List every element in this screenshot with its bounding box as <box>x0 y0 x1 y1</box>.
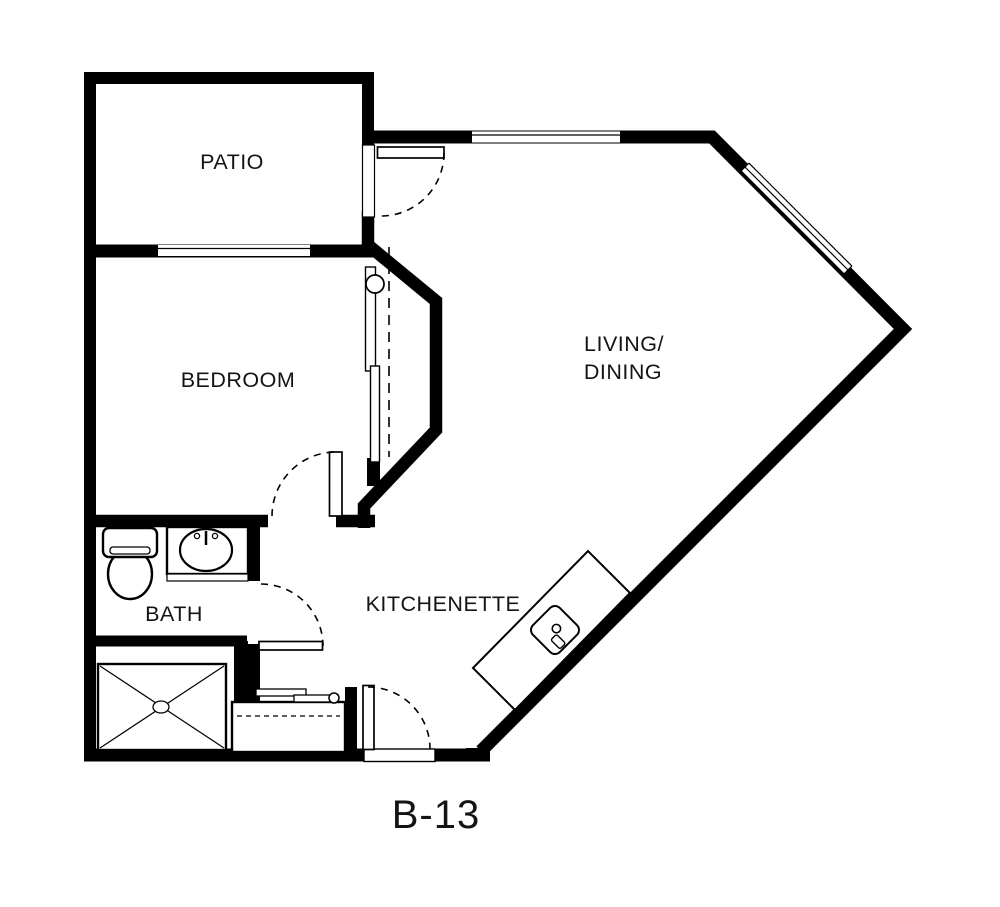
bedroom-door-leaf <box>330 452 343 516</box>
living-dining-label-line1: LIVING/ <box>584 332 664 356</box>
patio-door-leaf <box>378 147 445 158</box>
wall-living-top-and-diagonals <box>362 137 903 751</box>
kitchenette-label: KITCHENETTE <box>366 592 521 616</box>
bedroom-door <box>272 452 342 516</box>
window-edge <box>741 171 844 274</box>
bedroom-label: BEDROOM <box>181 368 296 392</box>
vanity-front-edge <box>167 574 248 581</box>
bath-door-swing <box>261 584 323 646</box>
toilet-fixture <box>103 528 157 599</box>
bath-label: BATH <box>145 602 203 626</box>
entry-threshold <box>364 749 435 762</box>
living-dining-label-line2: DINING <box>584 360 662 384</box>
closet-box <box>232 702 345 752</box>
sliding-door-handle <box>366 275 384 293</box>
entry-door <box>363 686 430 750</box>
opening-patio-door <box>363 145 375 217</box>
window-pane-line <box>745 167 848 270</box>
window-living-top <box>472 132 620 143</box>
shower-drain <box>153 701 169 713</box>
faucet-handle <box>194 533 199 538</box>
faucet-handle <box>212 533 217 538</box>
toilet-tank-lid <box>110 547 150 554</box>
bath-vanity <box>167 527 248 581</box>
bay-sliding-door <box>366 247 390 462</box>
plan-title: B-13 <box>392 793 481 837</box>
floor-plan-svg: PATIO BEDROOM LIVING/ DINING BATH KITCHE… <box>0 0 1000 907</box>
window-edge <box>749 163 852 266</box>
patio-door-swing <box>381 153 444 216</box>
shower-fixture <box>98 664 226 750</box>
floor-plan-page: PATIO BEDROOM LIVING/ DINING BATH KITCHE… <box>0 0 1000 907</box>
window-glass <box>158 245 310 256</box>
entry-door-leaf <box>363 686 374 750</box>
bath-door <box>259 584 323 650</box>
entry-door-swing <box>368 687 430 749</box>
opening-bedroom-door <box>268 514 336 528</box>
patio-door <box>378 147 445 216</box>
patio-label: PATIO <box>200 150 264 174</box>
sliding-panel <box>371 366 380 462</box>
window-glass <box>472 132 620 143</box>
bedroom-door-swing <box>272 452 336 516</box>
window-bedroom-patio <box>158 245 310 256</box>
closet-door-handle <box>329 693 339 703</box>
window-living-diagonal <box>741 163 852 274</box>
bath-door-leaf <box>259 642 323 651</box>
